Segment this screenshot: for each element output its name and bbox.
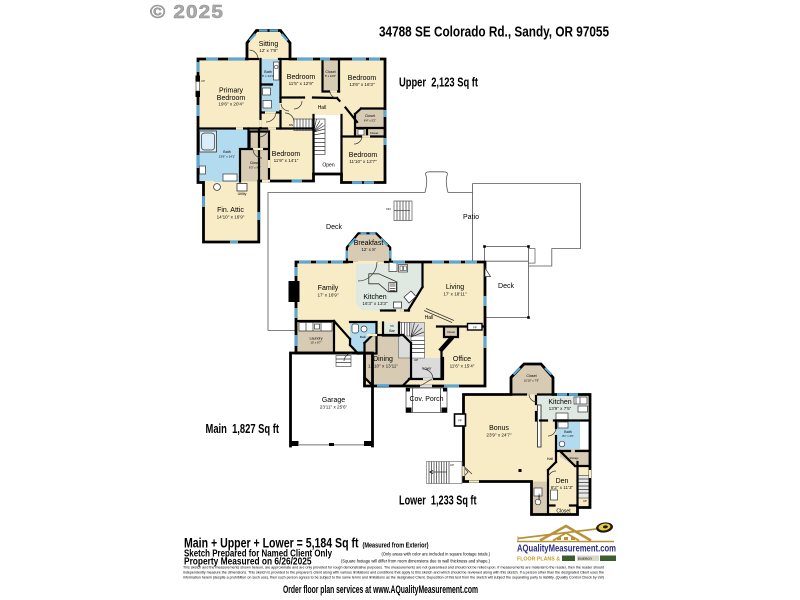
svg-text:11'9" x 14'1": 11'9" x 14'1" bbox=[274, 158, 299, 163]
svg-text:Upper 2,123 Sq ft: Upper 2,123 Sq ft bbox=[399, 76, 479, 90]
svg-text:Office: Office bbox=[453, 356, 471, 363]
svg-text:Cov. Porch: Cov. Porch bbox=[409, 396, 443, 403]
svg-text:11'5" x 12'9": 11'5" x 12'9" bbox=[289, 81, 314, 86]
svg-text:Closet: Closet bbox=[365, 114, 375, 118]
svg-text:Breakfast: Breakfast bbox=[354, 240, 384, 247]
svg-text:ENERGY: ENERGY bbox=[578, 557, 593, 561]
svg-text:(Measured from Exterior): (Measured from Exterior) bbox=[363, 543, 429, 550]
svg-text:Closet: Closet bbox=[370, 131, 379, 135]
svg-text:Hall: Hall bbox=[547, 457, 553, 461]
svg-text:19'6" x 20'4": 19'6" x 20'4" bbox=[218, 102, 244, 107]
svg-text:17' x 16'9": 17' x 16'9" bbox=[317, 293, 338, 298]
svg-text:8'1" x 4'9": 8'1" x 4'9" bbox=[562, 434, 573, 438]
svg-text:Order floor plan services at w: Order floor plan services at www.AQualit… bbox=[283, 584, 478, 596]
svg-text:11'6" x 15'4": 11'6" x 15'4" bbox=[450, 364, 475, 369]
svg-text:34788 SE Colorado Rd., Sandy,: 34788 SE Colorado Rd., Sandy, OR 97055 bbox=[379, 24, 609, 41]
svg-text:Bonus: Bonus bbox=[489, 425, 509, 432]
svg-text:Closet: Closet bbox=[526, 374, 536, 378]
svg-text:Deck: Deck bbox=[326, 224, 342, 231]
svg-text:Dining: Dining bbox=[373, 356, 393, 363]
svg-text:Bath: Bath bbox=[564, 430, 571, 434]
svg-text:13'6" x 14'1": 13'6" x 14'1" bbox=[219, 155, 235, 159]
svg-text:6'4" x 5'2": 6'4" x 5'2" bbox=[364, 119, 376, 123]
svg-text:Bedroom: Bedroom bbox=[349, 152, 378, 159]
svg-text:DN: DN bbox=[289, 123, 293, 127]
svg-text:Deck: Deck bbox=[498, 283, 514, 290]
svg-text:10'10" x 7'9": 10'10" x 7'9" bbox=[524, 379, 539, 383]
svg-text:6'3" x 9'9": 6'3" x 9'9" bbox=[249, 166, 261, 170]
svg-text:23'11" x 25'6": 23'11" x 25'6" bbox=[320, 405, 348, 410]
svg-text:information herein (despite a: information herein (despite a prohibitio… bbox=[183, 576, 604, 580]
svg-text:12' x 7'8": 12' x 7'8" bbox=[259, 48, 278, 53]
svg-text:8'2" x 11'3": 8'2" x 11'3" bbox=[551, 485, 574, 490]
svg-text:independently measure the dime: independently measure the dimensions. Th… bbox=[183, 571, 604, 575]
svg-text:Patio: Patio bbox=[463, 214, 479, 221]
svg-text:Lower 1,233 Sq ft: Lower 1,233 Sq ft bbox=[399, 494, 477, 508]
svg-text:© 2025: © 2025 bbox=[150, 2, 224, 22]
svg-text:FP: FP bbox=[202, 79, 206, 83]
svg-text:Family: Family bbox=[318, 285, 339, 292]
svg-text:23'9" x 24'7": 23'9" x 24'7" bbox=[486, 433, 512, 438]
svg-text:Hall: Hall bbox=[425, 315, 434, 321]
svg-text:5'6: 5'6 bbox=[390, 324, 394, 328]
svg-text:12' x 8': 12' x 8' bbox=[361, 247, 375, 252]
svg-text:11'10" x 12'7": 11'10" x 12'7" bbox=[349, 159, 377, 164]
svg-text:(Only areas with color are inc: (Only areas with color are included in s… bbox=[382, 551, 491, 556]
svg-text:Living: Living bbox=[446, 284, 464, 291]
svg-text:UP: UP bbox=[450, 463, 454, 467]
svg-text:Primary: Primary bbox=[219, 88, 244, 95]
svg-text:Den: Den bbox=[556, 478, 569, 485]
svg-text:Bedroom: Bedroom bbox=[348, 75, 377, 82]
svg-text:Foyer: Foyer bbox=[422, 367, 432, 371]
svg-text:16'3" x 13'3": 16'3" x 13'3" bbox=[362, 301, 388, 306]
svg-text:Storage: Storage bbox=[569, 456, 579, 460]
svg-text:FLOOR PLANS &: FLOOR PLANS & bbox=[517, 557, 560, 563]
svg-text:Bedroom: Bedroom bbox=[272, 151, 301, 158]
svg-text:14'10" x 16'9": 14'10" x 16'9" bbox=[217, 215, 245, 220]
svg-text:AQualityMeasurement.com: AQualityMeasurement.com bbox=[517, 543, 616, 555]
svg-text:Kitchen: Kitchen bbox=[363, 294, 386, 301]
svg-text:5' x 14'1": 5' x 14'1" bbox=[262, 74, 274, 78]
svg-text:UP: UP bbox=[414, 358, 418, 362]
svg-text:Utility: Utility bbox=[537, 493, 541, 500]
svg-text:Bedroom: Bedroom bbox=[287, 74, 316, 81]
svg-text:UP: UP bbox=[583, 499, 587, 503]
svg-text:This sketch and the measuremen: This sketch and the measurements shown h… bbox=[183, 566, 604, 570]
svg-text:17' x 18'11": 17' x 18'11" bbox=[443, 292, 467, 297]
svg-text:Bar: Bar bbox=[389, 329, 395, 333]
svg-text:Utility: Utility bbox=[238, 192, 247, 196]
svg-text:Closet: Closet bbox=[447, 330, 455, 334]
svg-text:FP: FP bbox=[458, 419, 462, 423]
svg-text:13'6" x 16'3": 13'6" x 16'3" bbox=[349, 82, 375, 87]
svg-text:Closet: Closet bbox=[556, 509, 571, 515]
svg-text:Fin. Attic: Fin. Attic bbox=[217, 207, 244, 214]
svg-text:Open: Open bbox=[322, 163, 334, 169]
svg-text:FP: FP bbox=[473, 325, 477, 329]
svg-text:Bath: Bath bbox=[223, 150, 230, 154]
svg-text:Sitting: Sitting bbox=[259, 41, 279, 48]
svg-text:DN: DN bbox=[386, 207, 390, 211]
svg-text:5' x 10'6": 5' x 10'6" bbox=[325, 74, 336, 78]
svg-text:Hall: Hall bbox=[318, 105, 327, 111]
svg-text:Kitchen: Kitchen bbox=[548, 399, 571, 406]
svg-text:Bath: Bath bbox=[360, 335, 367, 339]
svg-text:Closet: Closet bbox=[250, 161, 260, 165]
svg-text:(Square footage will differ fr: (Square footage will differ from room di… bbox=[341, 558, 491, 563]
svg-text:Main 1,827 Sq ft: Main 1,827 Sq ft bbox=[206, 422, 280, 436]
svg-text:12'10" x 13'11": 12'10" x 13'11" bbox=[368, 364, 398, 369]
svg-text:10' x 6'7": 10' x 6'7" bbox=[310, 341, 321, 345]
svg-text:13'9" x 7'5": 13'9" x 7'5" bbox=[549, 406, 572, 411]
svg-text:Garage: Garage bbox=[322, 397, 345, 404]
